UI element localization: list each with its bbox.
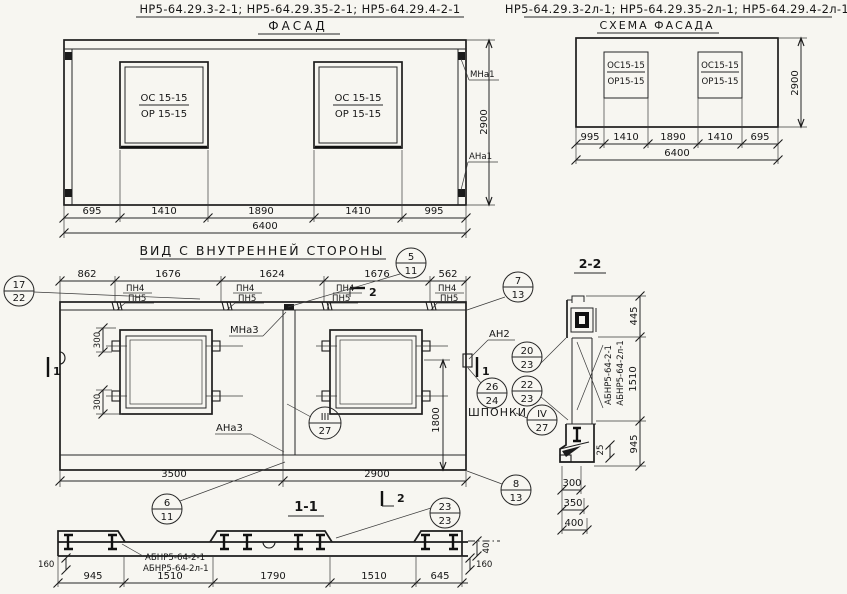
svg-text:27: 27 bbox=[319, 426, 332, 437]
svg-text:АБНР5-64-2л-1: АБНР5-64-2л-1 bbox=[616, 340, 626, 406]
pn-stack-2: ПН4 ПН5 bbox=[227, 284, 264, 310]
svg-text:ШПОНКИ: ШПОНКИ bbox=[468, 406, 527, 419]
dim: 1410 bbox=[707, 132, 732, 143]
svg-text:40: 40 bbox=[482, 543, 492, 554]
svg-text:1510: 1510 bbox=[361, 571, 386, 582]
svg-text:13: 13 bbox=[512, 290, 525, 301]
dim: 1624 bbox=[259, 269, 284, 280]
svg-text:24: 24 bbox=[486, 396, 499, 407]
svg-text:300: 300 bbox=[93, 332, 103, 348]
facade-title: ФАСАД bbox=[268, 19, 328, 33]
svg-text:АН2: АН2 bbox=[489, 329, 510, 340]
facade-panel-outline bbox=[64, 40, 466, 205]
schema-codes: НР5-64.29.3-2л-1; НР5-64.29.35-2л-1; НР5… bbox=[505, 2, 847, 16]
abnr-labels: АБНР5-64-2-1 АБНР5-64-2л-1 bbox=[122, 544, 209, 574]
dim-1800: 1800 bbox=[424, 360, 450, 470]
panel-drawing: НР5-64.29.3-2-1; НР5-64.29.35-2-1; НР5-6… bbox=[0, 0, 847, 594]
inner-bottom-dims: 3500 2900 bbox=[56, 455, 471, 487]
window-type-bottom: ОР 15-15 bbox=[335, 109, 381, 120]
callout-8-13: 8 13 bbox=[467, 471, 531, 505]
svg-text:8: 8 bbox=[513, 479, 519, 490]
svg-text:IV: IV bbox=[537, 409, 547, 420]
anchor-mark bbox=[458, 189, 465, 197]
svg-text:945: 945 bbox=[629, 434, 640, 453]
window-type-top: ОС15-15 bbox=[607, 61, 645, 71]
dim: 562 bbox=[438, 269, 457, 280]
top-notches bbox=[112, 302, 436, 310]
svg-text:1510: 1510 bbox=[628, 366, 639, 391]
dim: 695 bbox=[750, 132, 769, 143]
window-type-bottom: ОР15-15 bbox=[702, 77, 739, 87]
schema-window-2: ОС15-15 ОР15-15 bbox=[698, 52, 742, 98]
section-2-2-title: 2-2 bbox=[579, 256, 602, 271]
ana3-label: АНа3 bbox=[215, 423, 284, 452]
dim-total: 6400 bbox=[252, 221, 277, 232]
section-2-2: 2-2 АБНР5-64-2-1 АБНР5-64-2л-1 445 1510 … bbox=[558, 256, 647, 535]
svg-text:20: 20 bbox=[521, 346, 534, 357]
vertical-joint bbox=[283, 304, 295, 455]
dim: 1890 bbox=[248, 206, 273, 217]
svg-text:АНа3: АНа3 bbox=[216, 423, 243, 434]
window-type-bottom: ОР15-15 bbox=[608, 77, 645, 87]
svg-text:АБНР5-64-2-1: АБНР5-64-2-1 bbox=[604, 345, 614, 405]
window-type-bottom: ОР 15-15 bbox=[141, 109, 187, 120]
dim: 2900 bbox=[364, 469, 389, 480]
dim-160-right: 160 bbox=[466, 554, 493, 575]
schema-panel-outline bbox=[576, 38, 778, 127]
svg-text:160: 160 bbox=[38, 560, 54, 570]
window-type-top: ОС15-15 bbox=[701, 61, 739, 71]
svg-text:2: 2 bbox=[369, 286, 377, 299]
svg-text:17: 17 bbox=[13, 280, 26, 291]
svg-text:25: 25 bbox=[596, 445, 606, 456]
svg-text:ПН4: ПН4 bbox=[236, 284, 254, 294]
facade-codes: НР5-64.29.3-2-1; НР5-64.29.35-2-1; НР5-6… bbox=[139, 2, 460, 16]
svg-text:2: 2 bbox=[397, 492, 405, 505]
window-type-top: ОС 15-15 bbox=[140, 93, 187, 104]
abnr-labels-rotated: АБНР5-64-2-1 АБНР5-64-2л-1 bbox=[577, 340, 626, 410]
svg-text:26: 26 bbox=[486, 382, 499, 393]
svg-text:1: 1 bbox=[53, 365, 61, 378]
schema-view: НР5-64.29.3-2л-1; НР5-64.29.35-2л-1; НР5… bbox=[505, 2, 847, 165]
inner-window-1 bbox=[106, 330, 243, 414]
pn-stack-4: ПН4 ПН5 bbox=[431, 284, 466, 310]
inner-title: ВИД С ВНУТРЕННЕЙ СТОРОНЫ bbox=[139, 243, 384, 258]
dim-25: 25 bbox=[596, 441, 615, 463]
svg-text:МНа3: МНа3 bbox=[230, 325, 259, 336]
dim: 862 bbox=[77, 269, 96, 280]
svg-text:945: 945 bbox=[83, 571, 102, 582]
dim: 695 bbox=[82, 206, 101, 217]
drawing-sheet: НР5-64.29.3-2-1; НР5-64.29.35-2-1; НР5-6… bbox=[0, 0, 847, 594]
section-2-mark-bottom: 2 bbox=[382, 491, 405, 506]
svg-text:22: 22 bbox=[13, 293, 26, 304]
dim: 3500 bbox=[161, 469, 186, 480]
section-2-2-profile bbox=[560, 296, 596, 462]
svg-text:11: 11 bbox=[161, 512, 174, 523]
svg-text:160: 160 bbox=[476, 560, 492, 570]
svg-text:1790: 1790 bbox=[260, 571, 285, 582]
inner-window-2 bbox=[316, 330, 448, 414]
facade-window-2: ОС 15-15 ОР 15-15 bbox=[314, 62, 402, 148]
schema-window-1: ОС15-15 ОР15-15 bbox=[604, 52, 648, 98]
dim: 1410 bbox=[345, 206, 370, 217]
svg-text:АБНР5-64-2-1: АБНР5-64-2-1 bbox=[145, 553, 205, 563]
section-1-mark-left: 1 bbox=[48, 357, 61, 378]
dim: 1410 bbox=[613, 132, 638, 143]
anchor-mark bbox=[458, 52, 465, 60]
mark-mna1: МНа1 bbox=[470, 70, 495, 80]
inner-view: ВИД С ВНУТРЕННЕЙ СТОРОНЫ 862 1676 1624 1… bbox=[48, 243, 527, 506]
callouts: 17 22 5 11 7 13 20 23 26 24 22 23 III 27 bbox=[4, 248, 568, 538]
shponki-label: ШПОНКИ bbox=[468, 406, 527, 419]
svg-text:6: 6 bbox=[164, 498, 170, 509]
anchor-mark bbox=[65, 52, 72, 60]
schema-title: СХЕМА ФАСАДА bbox=[600, 19, 715, 32]
facade-height-dim: 2900 bbox=[466, 40, 495, 205]
svg-text:ПН4: ПН4 bbox=[438, 284, 456, 294]
svg-text:400: 400 bbox=[564, 518, 583, 529]
window-type-top: ОС 15-15 bbox=[334, 93, 381, 104]
svg-text:645: 645 bbox=[430, 571, 449, 582]
svg-text:23: 23 bbox=[439, 516, 452, 527]
dim: 1410 bbox=[151, 206, 176, 217]
an2-label: АН2 bbox=[463, 329, 515, 367]
svg-text:III: III bbox=[321, 412, 330, 423]
svg-text:23: 23 bbox=[521, 394, 534, 405]
svg-text:1510: 1510 bbox=[157, 571, 182, 582]
svg-text:5: 5 bbox=[408, 252, 414, 263]
dim: 1676 bbox=[155, 269, 180, 280]
dim: 995 bbox=[424, 206, 443, 217]
schema-height-dim: 2900 bbox=[778, 38, 807, 127]
svg-text:445: 445 bbox=[629, 306, 640, 325]
svg-text:300: 300 bbox=[562, 478, 581, 489]
callout-iv-27: IV 27 bbox=[527, 405, 557, 435]
mna3-label: МНа3 bbox=[229, 312, 286, 336]
dim-40-right: 40 bbox=[473, 537, 493, 561]
svg-text:11: 11 bbox=[405, 266, 418, 277]
svg-text:ПН4: ПН4 bbox=[126, 284, 144, 294]
section-1-1-title: 1-1 bbox=[294, 500, 318, 515]
section-1-1-profile bbox=[58, 531, 500, 556]
facade-view: НР5-64.29.3-2-1; НР5-64.29.35-2-1; НР5-6… bbox=[60, 2, 500, 238]
dim-2900: 2900 bbox=[479, 109, 490, 134]
facade-bottom-dims: 695 1410 1890 1410 995 6400 bbox=[60, 150, 471, 238]
svg-text:27: 27 bbox=[536, 423, 549, 434]
dims-bottom-stack: 300 350 400 bbox=[558, 466, 592, 535]
svg-text:350: 350 bbox=[563, 498, 582, 509]
facade-window-1: ОС 15-15 ОР 15-15 bbox=[120, 62, 208, 148]
section-1-mark-right: 1 bbox=[477, 357, 490, 378]
svg-text:22: 22 bbox=[521, 380, 534, 391]
callout-7-13: 7 13 bbox=[467, 272, 533, 310]
anchor-mark bbox=[65, 189, 72, 197]
dim: 995 bbox=[580, 132, 599, 143]
dim-total: 6400 bbox=[664, 148, 689, 159]
inner-panel-outline bbox=[60, 302, 466, 470]
svg-text:7: 7 bbox=[515, 276, 521, 287]
svg-text:1800: 1800 bbox=[431, 407, 442, 432]
dim: 1890 bbox=[660, 132, 685, 143]
svg-text:23: 23 bbox=[521, 360, 534, 371]
svg-text:13: 13 bbox=[510, 493, 523, 504]
svg-text:23: 23 bbox=[439, 502, 452, 513]
dim-2900: 2900 bbox=[790, 70, 801, 95]
svg-text:300: 300 bbox=[93, 394, 103, 410]
schema-bottom-dims: 995 1410 1890 1410 695 6400 bbox=[572, 98, 783, 165]
svg-text:1: 1 bbox=[482, 365, 490, 378]
callout-20-23: 20 23 bbox=[512, 338, 566, 372]
